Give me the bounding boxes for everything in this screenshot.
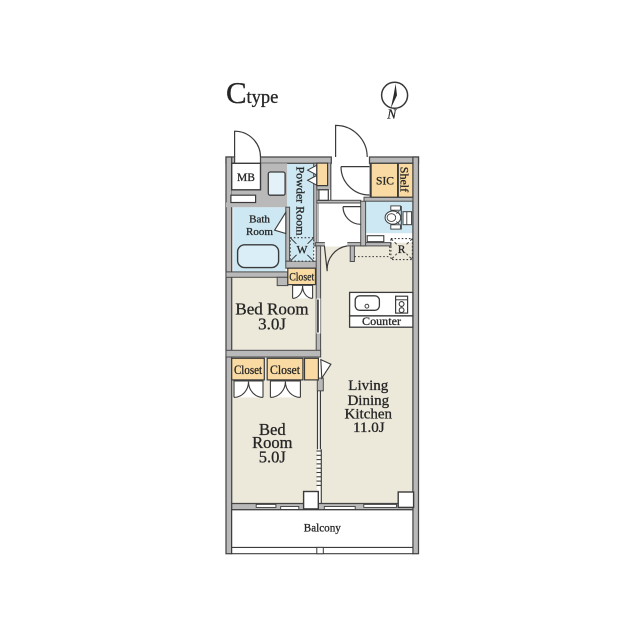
svg-text:3.0J: 3.0J	[258, 314, 286, 333]
svg-text:Counter: Counter	[362, 316, 401, 328]
svg-text:Shelf: Shelf	[397, 167, 411, 192]
svg-text:5.0J: 5.0J	[259, 447, 287, 466]
svg-text:C: C	[226, 75, 247, 110]
svg-text:Closet: Closet	[234, 362, 262, 377]
svg-text:Living: Living	[348, 378, 388, 394]
svg-text:SIC: SIC	[376, 175, 394, 187]
svg-text:MB: MB	[237, 172, 255, 184]
svg-text:Closet: Closet	[270, 362, 300, 377]
svg-text:Room: Room	[246, 226, 273, 238]
svg-text:W: W	[297, 245, 308, 257]
svg-text:Balcony: Balcony	[304, 521, 341, 535]
svg-text:R: R	[398, 244, 406, 256]
svg-text:11.0J: 11.0J	[353, 420, 385, 436]
svg-text:Closet: Closet	[289, 270, 315, 284]
svg-text:N: N	[386, 107, 397, 122]
svg-text:type: type	[247, 88, 279, 108]
svg-text:Bath: Bath	[249, 213, 270, 225]
svg-text:Powder Room: Powder Room	[293, 167, 307, 237]
